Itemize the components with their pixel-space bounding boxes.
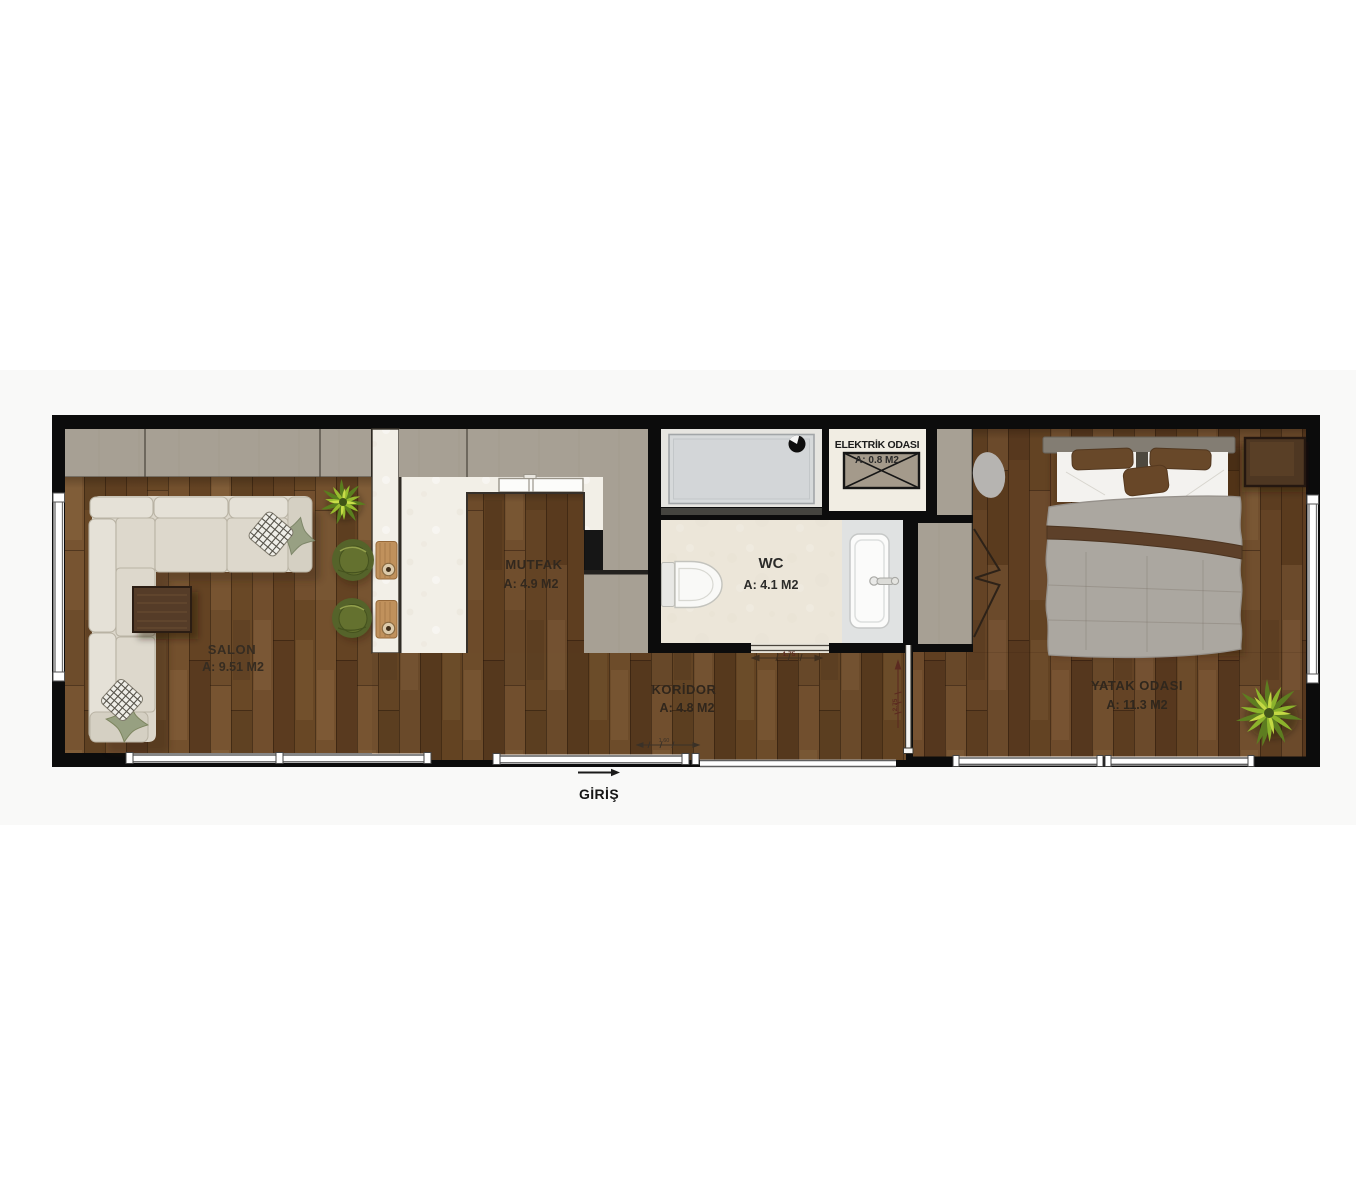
svg-text:A: 11.3 M2: A: 11.3 M2 bbox=[1106, 698, 1167, 712]
svg-text:SALON: SALON bbox=[208, 642, 257, 657]
svg-text:1.60: 1.60 bbox=[659, 738, 670, 744]
svg-text:MUTFAK: MUTFAK bbox=[505, 557, 562, 572]
svg-text:WC: WC bbox=[759, 555, 784, 572]
svg-text:YATAK ODASI: YATAK ODASI bbox=[1091, 678, 1183, 693]
svg-text:A: 4.8 M2: A: 4.8 M2 bbox=[660, 701, 715, 715]
svg-text:GİRİŞ: GİRİŞ bbox=[579, 786, 619, 802]
svg-text:A: 4.9 M2: A: 4.9 M2 bbox=[504, 577, 559, 591]
svg-text:A: 4.1 M2: A: 4.1 M2 bbox=[744, 578, 799, 592]
svg-text:ELEKTRİK ODASI: ELEKTRİK ODASI bbox=[835, 438, 920, 451]
svg-text:A: 9.51 M2: A: 9.51 M2 bbox=[202, 660, 264, 674]
svg-text:KORİDOR: KORİDOR bbox=[652, 682, 717, 697]
svg-text:A: 0.8 M2: A: 0.8 M2 bbox=[855, 455, 899, 466]
